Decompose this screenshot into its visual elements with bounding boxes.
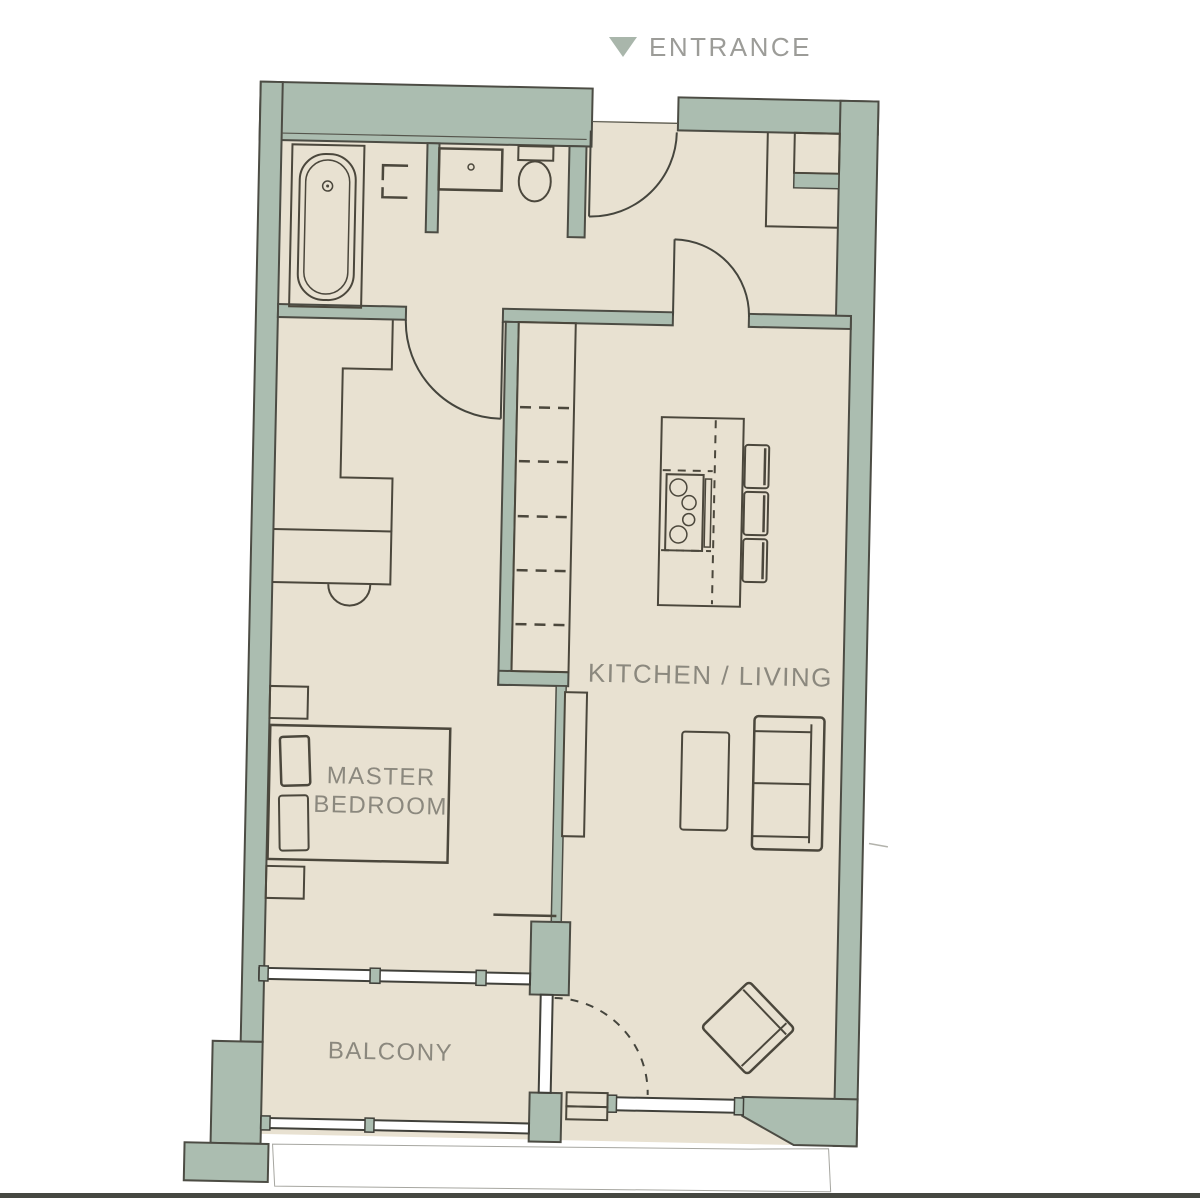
window-cap — [607, 1095, 616, 1112]
tv-unit — [562, 692, 587, 836]
entrance-marker: ENTRANCE — [609, 32, 812, 62]
wall-hall-south-right — [749, 314, 851, 329]
counter-divider — [517, 570, 568, 571]
kitchen-counter — [512, 322, 576, 672]
entrance-arrow-icon — [609, 37, 637, 57]
window-mullion — [259, 966, 268, 981]
wall-pier-upper — [530, 921, 571, 995]
wall-counter-cap — [498, 671, 568, 686]
master-bedroom-label-line2: BEDROOM — [313, 791, 448, 821]
counter-divider — [518, 516, 569, 517]
wall-left-lower — [211, 1041, 263, 1144]
window-mullion — [370, 968, 380, 983]
wall-pier-lower — [529, 1092, 562, 1142]
railing-post — [365, 1118, 374, 1132]
low-wall-line — [493, 915, 556, 916]
window-cap — [734, 1098, 743, 1115]
floor-plan-canvas: ENTRANCE — [0, 0, 1200, 1200]
railing-post — [261, 1116, 270, 1130]
stool-back — [762, 542, 763, 579]
glazed-partition — [539, 995, 553, 1093]
window-mullion — [476, 970, 486, 985]
entrance-label: ENTRANCE — [649, 32, 812, 62]
kitchen-living-label: KITCHEN / LIVING — [588, 658, 834, 693]
counter-divider — [520, 407, 571, 408]
floor-plan: KITCHEN / LIVING MASTER BEDROOM BALCONY — [184, 80, 904, 1198]
neighbor-balcony-mark — [869, 844, 888, 847]
wall-left-foot — [184, 1142, 269, 1182]
wall-top-left — [260, 82, 593, 147]
sliding-window — [609, 1097, 741, 1113]
wall-closet-shelf-back — [794, 173, 839, 189]
stool-back — [764, 448, 765, 485]
lower-terrace-edge — [272, 1137, 832, 1198]
wall-bathroom-east — [568, 146, 587, 237]
stool-back — [763, 495, 764, 532]
master-bedroom-label-line1: MASTER — [326, 762, 436, 791]
page-bottom-border — [0, 1193, 1200, 1198]
counter-divider — [515, 624, 566, 625]
counter-divider — [519, 461, 570, 462]
balcony-label: BALCONY — [328, 1037, 454, 1067]
